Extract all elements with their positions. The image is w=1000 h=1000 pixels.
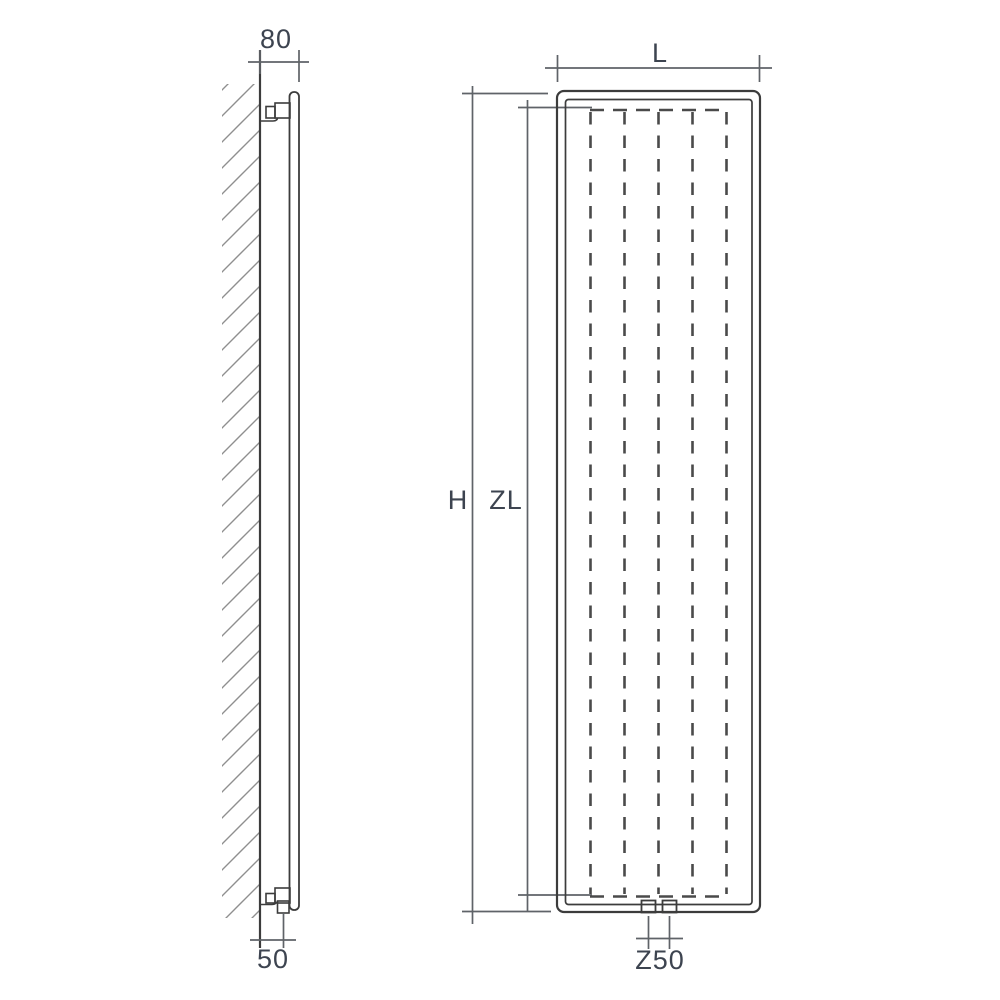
dimension-depth-80: 80 bbox=[248, 24, 309, 82]
radiator-front-outline-inner bbox=[566, 100, 753, 905]
mounting-bracket-bottom bbox=[260, 888, 290, 913]
dimension-label-L: L bbox=[652, 38, 668, 68]
bracket-step bbox=[266, 107, 275, 119]
dimension-width-L: L bbox=[545, 38, 772, 82]
mounting-bracket-top bbox=[260, 103, 290, 121]
bracket-body bbox=[275, 103, 290, 118]
bracket-step bbox=[266, 894, 275, 904]
dimension-label-Z50: Z50 bbox=[635, 945, 685, 975]
pipe-connection-right bbox=[663, 901, 677, 913]
dimension-label-ZL: ZL bbox=[489, 485, 523, 515]
technical-drawing-canvas: 80 50 L H ZL bbox=[0, 0, 1000, 1000]
dimension-connection-offset-50: 50 bbox=[250, 913, 296, 974]
dimension-connection-spacing-Z50: Z50 bbox=[635, 916, 685, 975]
page-background: 80 50 L H ZL bbox=[0, 0, 1000, 1000]
dimension-convector-height-ZL: ZL bbox=[489, 100, 592, 911]
dimension-label-80: 80 bbox=[260, 24, 292, 54]
convector-hidden-lines bbox=[590, 110, 727, 897]
dimension-label-H: H bbox=[448, 485, 469, 515]
radiator-panel-side-profile bbox=[290, 92, 300, 910]
wall-hatch-area bbox=[222, 84, 260, 918]
pipe-connections-front bbox=[642, 901, 677, 913]
pipe-connection-left bbox=[642, 901, 656, 913]
dimension-label-50: 50 bbox=[257, 944, 289, 974]
